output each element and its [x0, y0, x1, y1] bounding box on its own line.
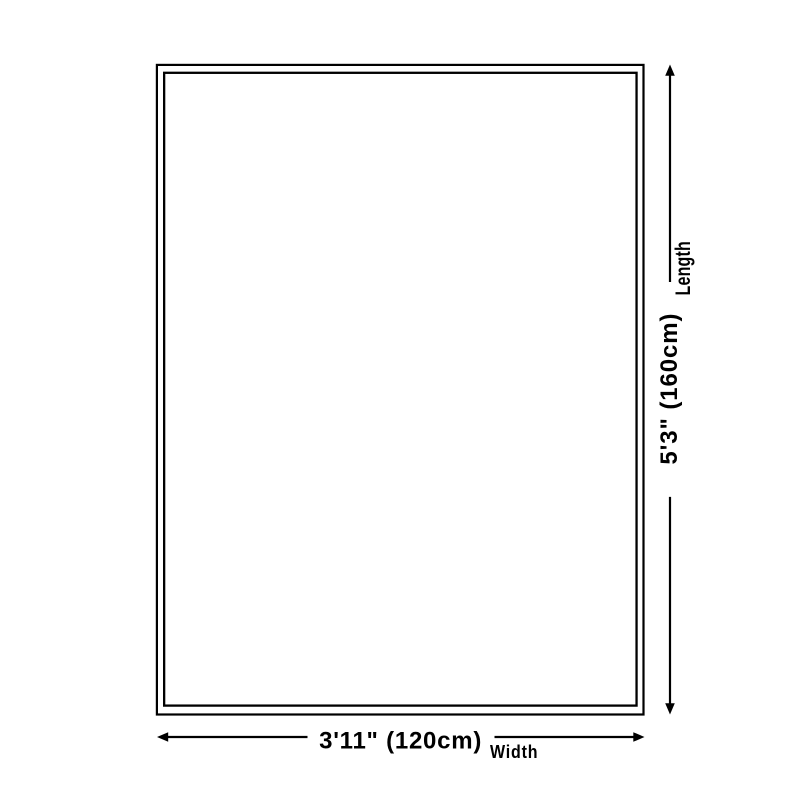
- svg-text:Length: Length: [671, 241, 695, 295]
- svg-text:5'3" (160cm): 5'3" (160cm): [656, 313, 683, 465]
- svg-text:3'11" (120cm): 3'11" (120cm): [319, 728, 482, 755]
- svg-text:Width: Width: [490, 741, 538, 762]
